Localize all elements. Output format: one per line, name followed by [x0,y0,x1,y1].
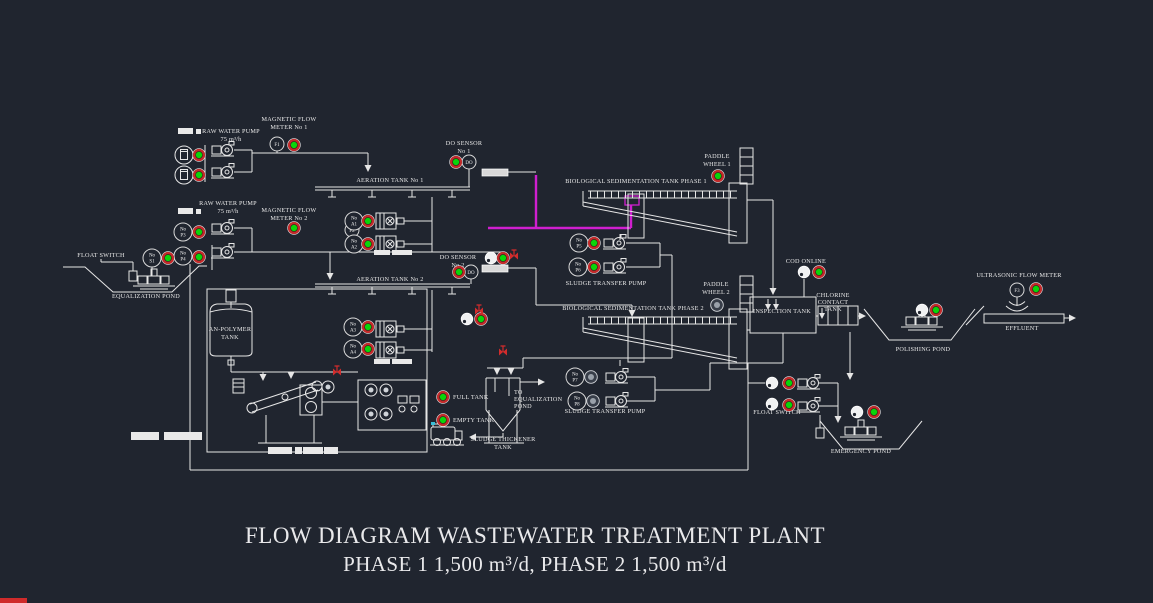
diagram-svg: RAW WATER PUMP75 m³/hMAGNETIC FLOWMETER … [0,0,1153,603]
tag-flow-meter-f3: F3 [1010,283,1024,297]
indicator-pump-p4 [193,251,206,264]
label-aeration-tank-1: AERATION TANK No 1 [356,177,423,184]
white-block-13 [324,447,338,454]
tag-pump-p4: NoP4 [174,247,192,265]
indicator-blower-a3 [362,321,375,334]
indicator-pump-p5 [588,237,601,250]
label-paddle-wheel-1: PADDLEWHEEL 1 [703,153,731,168]
label-polishing-pond: POLISHING POND [896,346,951,353]
label-sludge-transfer-pump-1: SLUDGE TRANSFER PUMP [566,280,647,287]
status-circle-float-switch-right-1 [766,377,778,389]
indicator-blower-a1 [362,215,375,228]
status-circle-aeration-out-2 [485,252,497,264]
svg-text:NoP7: NoP7 [572,373,579,384]
status-circle-sed-feed-2 [461,313,473,325]
tag-flow-meter-f1: F1 [270,137,284,151]
label-equalization-pond: EQUALIZATION POND [112,293,180,300]
tag-pump-p3: NoP3 [174,223,192,241]
white-block-1 [196,129,201,134]
svg-text:NoP4: NoP4 [180,252,187,263]
label-aeration-tank-2: AERATION TANK No 2 [356,276,423,283]
status-circle-emergency-pond [851,406,863,418]
indicator-pump-p3 [193,226,206,239]
svg-text:F3: F3 [1014,289,1020,294]
svg-text:NoP8: NoP8 [574,397,581,408]
indicator-empty-tank [437,414,450,427]
white-block-4 [374,250,390,255]
indicator-switch-s1 [162,252,175,265]
tag-blower-a4: NoA4 [344,340,362,358]
label-float-switch-left: FLOAT SWITCH [77,252,125,259]
white-block-11 [295,447,302,454]
status-circle-cod-online [798,266,810,278]
indicator-do-1 [450,156,463,169]
white-block-7 [392,359,412,364]
label-biological-sedimentation-tank-2: BIOLOGICAL SEDIMENTATION TANK PHASE 2 [562,305,704,312]
title-line-2: PHASE 1 1,500 m³/d, PHASE 2 1,500 m³/d [0,552,1070,577]
status-circle-float-switch-right-2 [766,398,778,410]
svg-text:DO: DO [467,271,475,276]
title-block: FLOW DIAGRAM WASTEWATER TREATMENT PLANT … [0,523,1070,577]
svg-text:NoP6: NoP6 [575,263,582,274]
tag-blower-a3: NoA3 [344,318,362,336]
label-inspection-tank: INSPECTION TANK [753,308,811,315]
indicator-blower-a4 [362,343,375,356]
indicator-float-switch-right-2 [783,399,796,412]
tag-blower-a1: NoA1 [345,212,363,230]
white-block-6 [374,359,390,364]
white-block-8 [131,432,159,440]
svg-text:F1: F1 [274,143,280,148]
white-block-9 [164,432,202,440]
label-effluent: EFFLUENT [1006,325,1039,332]
indicator-sed-feed-2 [475,313,488,326]
indicator-pump-p8 [587,395,600,408]
label-biological-sedimentation-tank-1: BIOLOGICAL SEDIMENTATION TANK PHASE 1 [565,178,707,185]
indicator-dosing-2 [193,169,206,182]
indicator-pump-p6 [588,261,601,274]
indicator-ultrasonic-flow-meter [1030,283,1043,296]
indicator-paddle-wheel-1 [712,170,725,183]
indicator-aeration-out-2 [497,252,510,265]
indicator-dosing-1 [193,149,206,162]
status-circle-polishing-pond [916,304,928,316]
flow-diagram-canvas: RAW WATER PUMP75 m³/hMAGNETIC FLOWMETER … [0,0,1153,603]
label-empty-tank: EMPTY TANK [453,417,495,424]
label-full-tank: FULL TANK [453,394,489,401]
truck-beacon [431,422,435,425]
indicator-polishing-pond [930,304,943,317]
indicator-blower-a2 [362,238,375,251]
white-block-2 [178,208,193,214]
label-ultrasonic-flow-meter: ULTRASONIC FLOW METER [976,272,1062,279]
label-emergency-pond: EMERGENCY POND [831,448,891,455]
indicator-paddle-wheel-2 [711,299,724,312]
tag-do-2: DO [464,265,478,279]
background [0,0,1153,603]
svg-text:NoP5: NoP5 [576,239,583,250]
indicator-full-tank [437,391,450,404]
tag-pump-p6: NoP6 [569,258,587,276]
tag-do-1: DO [462,155,476,169]
indicator-do-2 [453,266,466,279]
white-block-10 [268,447,292,454]
indicator-flow-meter-1 [288,139,301,152]
white-block-0 [178,128,193,134]
white-block-5 [392,250,412,255]
label-float-switch-right: FLOAT SWITCH [753,409,801,416]
svg-text:NoP3: NoP3 [180,228,187,239]
label-paddle-wheel-2: PADDLEWHEEL 2 [702,281,730,296]
bottom-red-strip [0,598,27,603]
tag-pump-p7: NoP7 [566,368,584,386]
svg-text:DO: DO [465,161,473,166]
white-block-3 [196,209,201,214]
label-cod-online: COD ONLINE [786,258,826,265]
tag-blower-a2: NoA2 [345,235,363,253]
indicator-float-switch-right-1 [783,377,796,390]
launder-2 [482,265,508,272]
tag-pump-p8: NoP8 [568,392,586,410]
svg-text:NoA1: NoA1 [351,217,358,228]
white-block-12 [303,447,323,454]
indicator-flow-meter-2 [288,222,301,235]
title-line-1: FLOW DIAGRAM WASTEWATER TREATMENT PLANT [0,523,1070,549]
launder-1 [482,169,508,176]
svg-text:NoA2: NoA2 [351,240,358,251]
svg-text:NoA3: NoA3 [350,323,357,334]
indicator-cod-online [813,266,826,279]
svg-text:NoA4: NoA4 [350,345,357,356]
svg-text:NoS1: NoS1 [149,254,156,265]
tag-pump-p5: NoP5 [570,234,588,252]
indicator-pump-p7 [585,371,598,384]
indicator-emergency-pond [868,406,881,419]
tag-switch-s1: NoS1 [143,249,161,267]
